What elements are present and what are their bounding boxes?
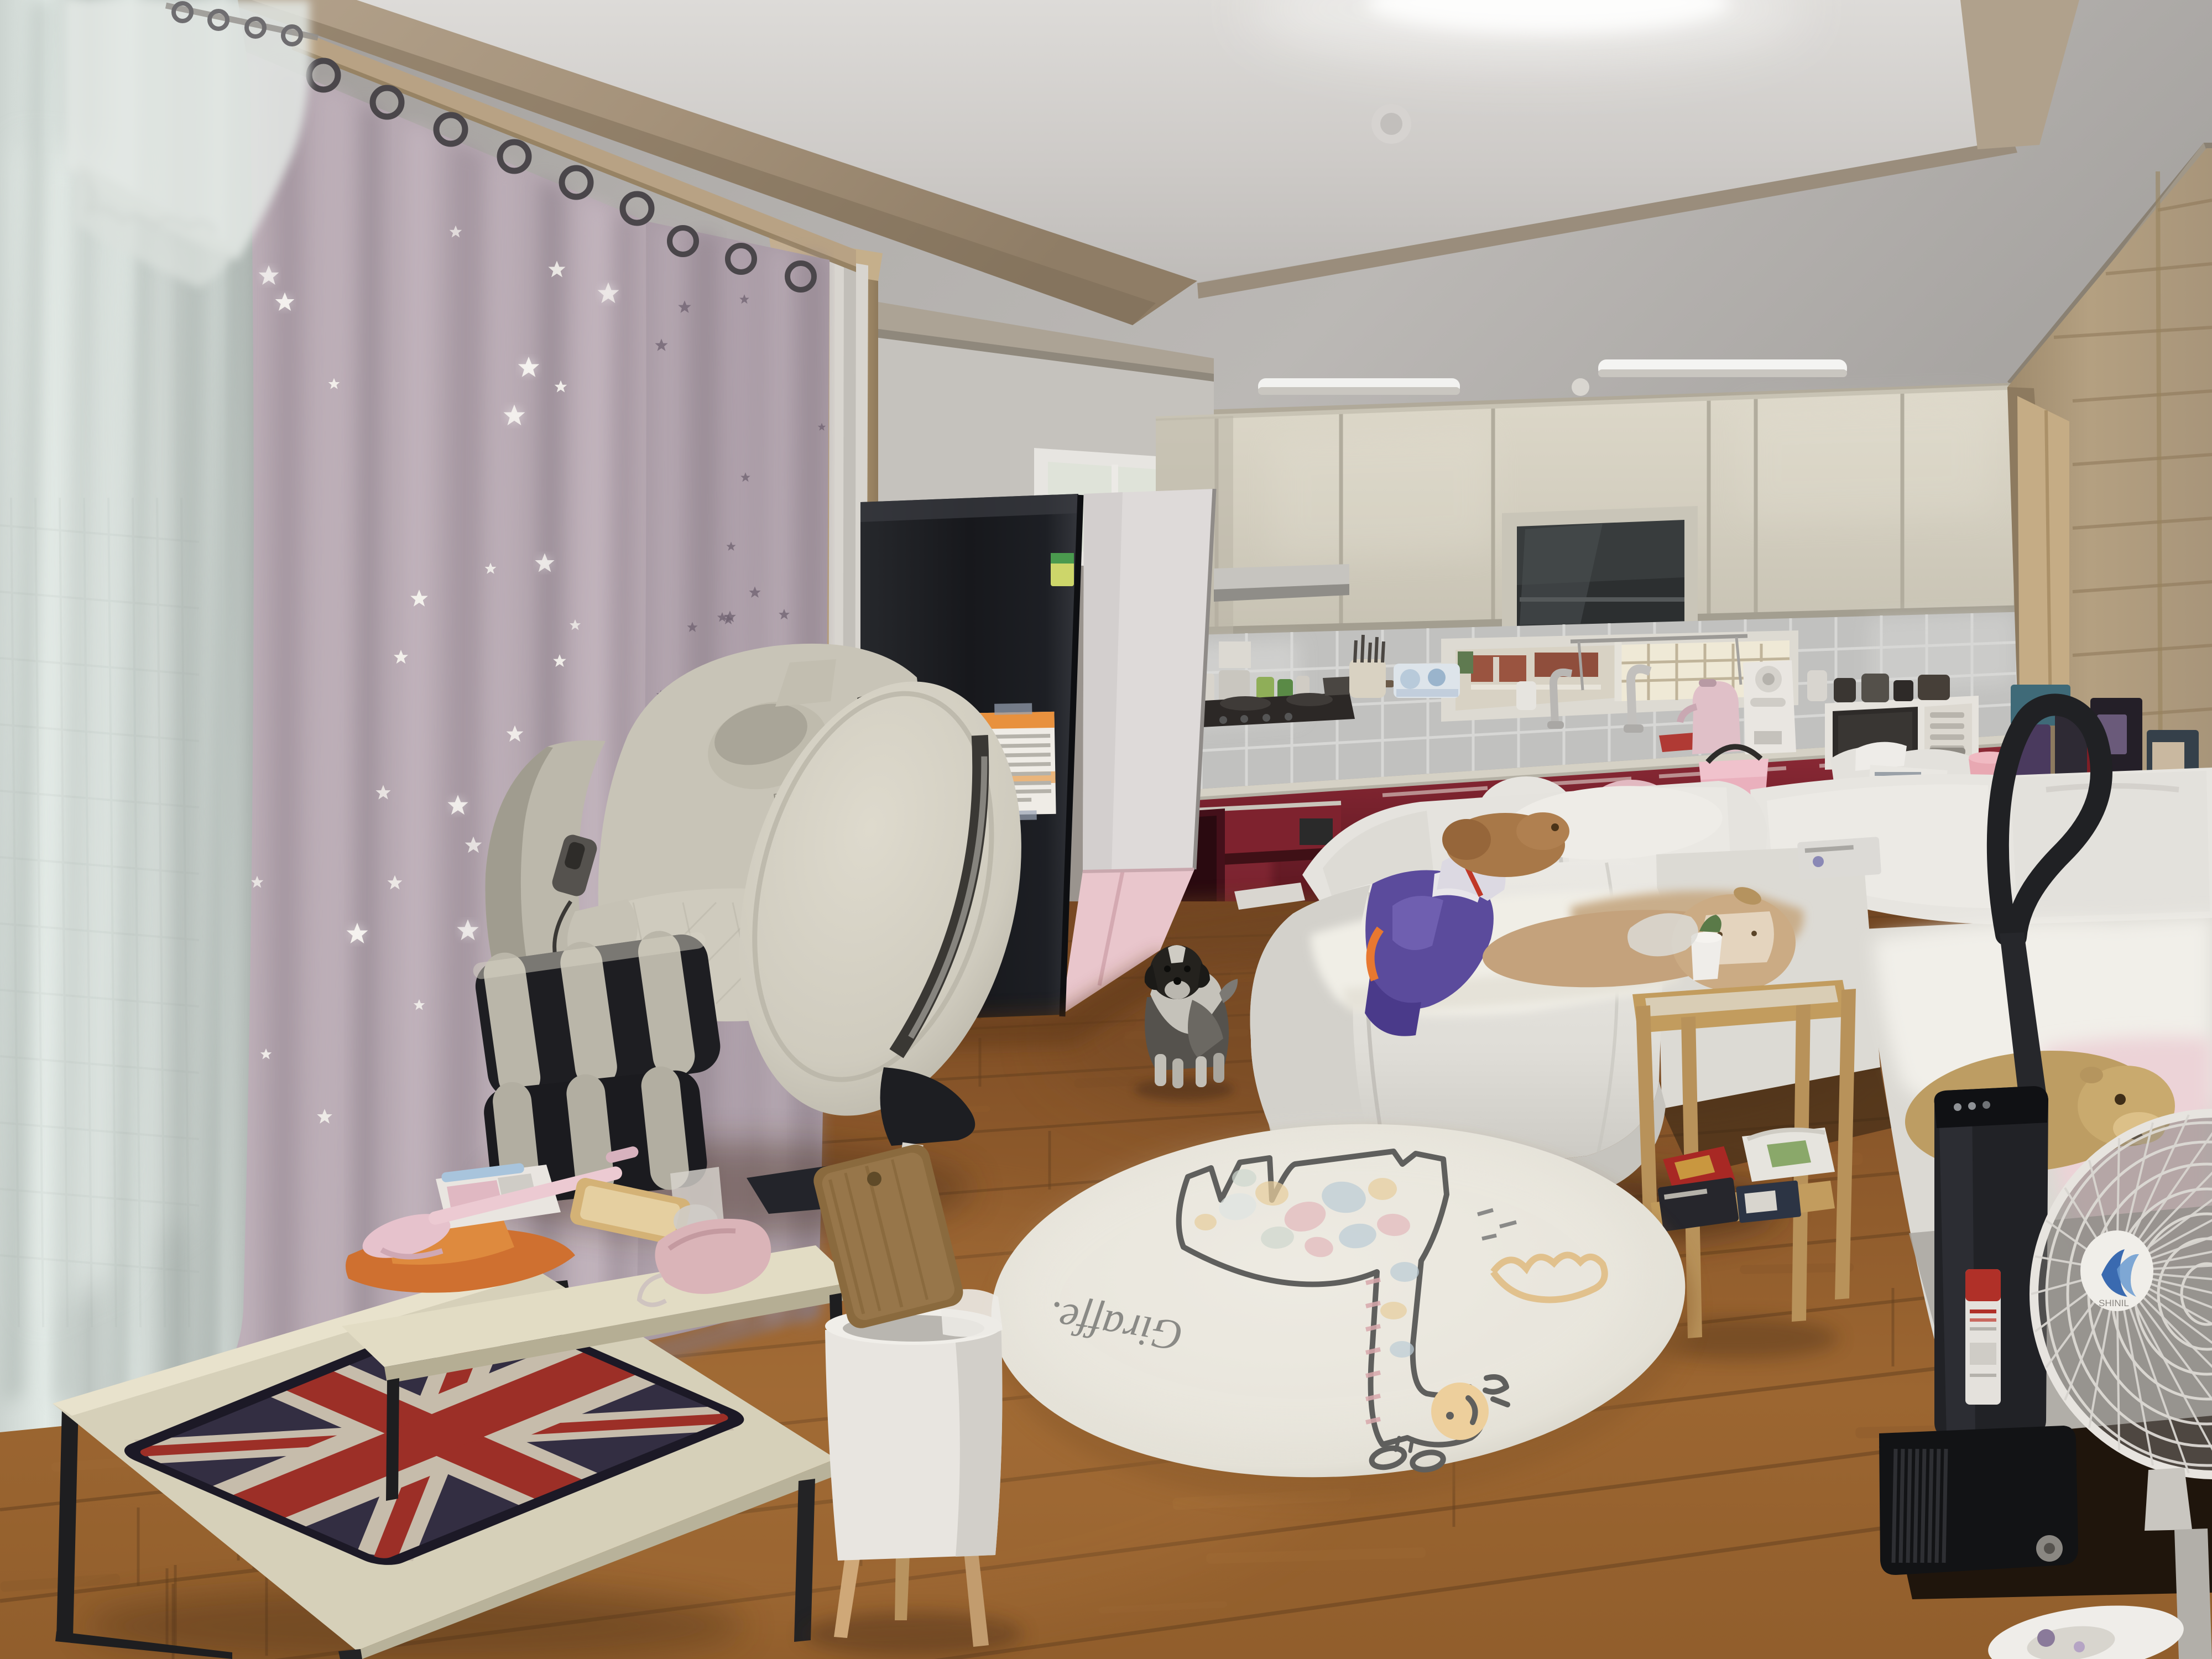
svg-text:SHINIL: SHINIL — [2099, 1298, 2129, 1308]
